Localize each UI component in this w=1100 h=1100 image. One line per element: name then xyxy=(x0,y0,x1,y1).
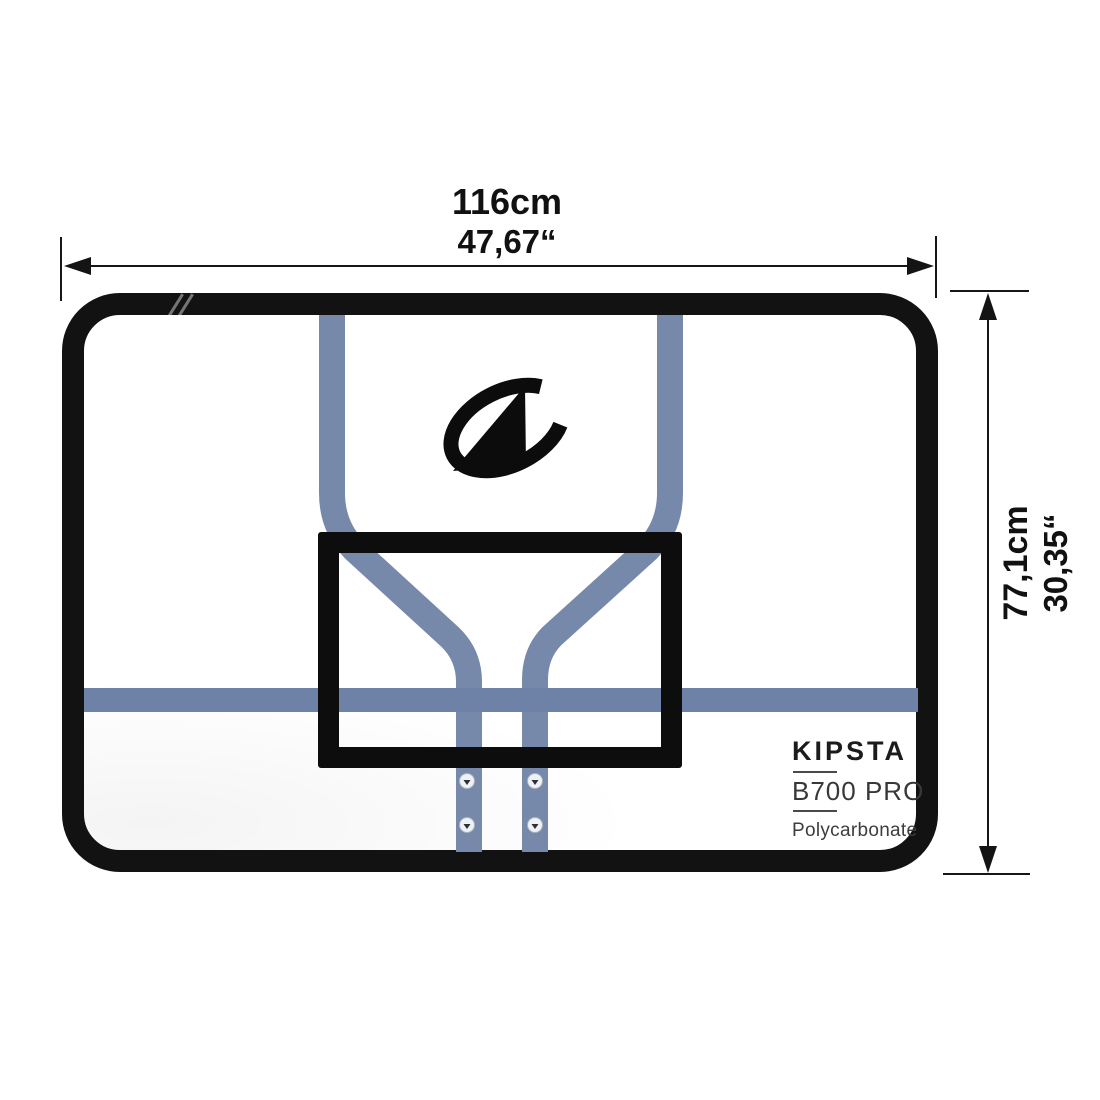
bolt-icon xyxy=(460,818,475,833)
height-dimension-label: 77,1cm 30,35“ xyxy=(998,453,1078,673)
height-dimension-line xyxy=(987,316,989,846)
arrow-left-icon xyxy=(64,257,91,275)
label-divider xyxy=(793,771,837,773)
width-dimension-label: 116cm 47,67“ xyxy=(452,183,562,259)
brand-name: KIPSTA xyxy=(792,738,982,765)
label-divider xyxy=(793,810,837,812)
height-tick-top xyxy=(950,290,1029,292)
height-cm-text: 77,1cm xyxy=(998,453,1035,673)
width-tick-left xyxy=(60,237,62,301)
target-square xyxy=(318,532,682,768)
width-dimension-line xyxy=(90,265,908,267)
width-inches-text: 47,67“ xyxy=(452,225,562,260)
backboard-dimension-diagram: 116cm 47,67“ 77,1cm 30,35“ xyxy=(0,0,1100,1100)
width-cm-text: 116cm xyxy=(452,183,562,221)
height-inches-text: 30,35“ xyxy=(1038,453,1074,673)
arrow-down-icon xyxy=(979,846,997,873)
height-tick-bottom xyxy=(943,873,1030,875)
material-name: Polycarbonate xyxy=(792,821,982,840)
model-name: B700 PRO xyxy=(792,778,982,804)
bolt-icon xyxy=(528,818,543,833)
backboard-frame: KIPSTA B700 PRO Polycarbonate xyxy=(62,293,938,872)
tarmak-swoosh-logo xyxy=(435,368,585,498)
arrow-up-icon xyxy=(979,293,997,320)
width-tick-right xyxy=(935,236,937,298)
product-label: KIPSTA B700 PRO Polycarbonate xyxy=(792,738,982,840)
arrow-right-icon xyxy=(907,257,934,275)
bolt-icon xyxy=(528,774,543,789)
bolt-icon xyxy=(460,774,475,789)
